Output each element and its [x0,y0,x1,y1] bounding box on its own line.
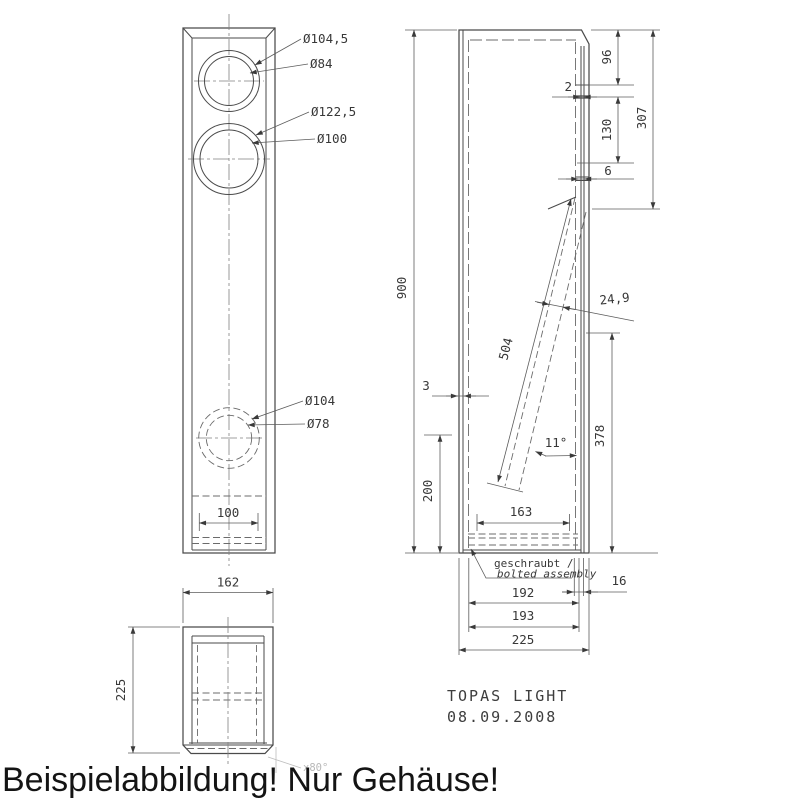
dim-900: 900 [394,30,414,553]
svg-text:378: 378 [592,425,607,448]
svg-text:96: 96 [599,49,614,64]
dim-162: 162 [183,575,273,624]
dim-tweeter-outer: Ø104,5 [303,31,348,46]
svg-text:2: 2 [564,79,572,94]
dim-225-depth: 225 [459,632,589,650]
title-block: TOPAS LIGHT 08.09.2008 [447,687,568,726]
dim-378: 378 [592,333,612,553]
dim-96: 96 [599,30,618,85]
dim-307: 307 [634,30,653,209]
svg-text:16: 16 [611,573,626,588]
front-view: Ø104,5 Ø84 Ø122,5 Ø100 Ø104 Ø78 100 [183,14,356,566]
dim-200: 200 [420,435,440,553]
svg-text:307: 307 [634,107,649,130]
dim-woofer-inner: Ø100 [317,131,347,146]
svg-text:130: 130 [599,119,614,142]
svg-text:3: 3 [422,378,430,393]
svg-text:11°: 11° [545,435,568,450]
svg-text:163: 163 [510,504,533,519]
svg-text:193: 193 [512,608,535,623]
svg-text:100: 100 [217,505,240,520]
dim-225-topview: 225 [113,627,180,753]
svg-text:504: 504 [496,336,516,362]
svg-text:900: 900 [394,277,409,300]
svg-text:bolted assembly: bolted assembly [497,568,597,581]
svg-text:225: 225 [113,679,128,702]
dim-193: 193 [469,608,580,627]
drawing-title: TOPAS LIGHT [447,687,568,705]
diameter-leaders [248,39,315,425]
example-disclaimer-text: Beispielabbildung! Nur Gehäuse! [2,761,499,799]
bottom-panel-hidden [468,534,578,545]
side-view: 900 96 2 130 307 6 [394,30,660,655]
dim-163: 163 [477,504,570,531]
svg-text:6: 6 [604,163,612,178]
drawing-date: 08.09.2008 [447,708,557,726]
dim-3: 3 [422,378,489,396]
dim-2: 2 [552,79,634,97]
technical-drawing-page: Ø104,5 Ø84 Ø122,5 Ø100 Ø104 Ø78 100 900 [0,0,800,800]
svg-text:200: 200 [420,480,435,503]
cad-drawing-canvas: Ø104,5 Ø84 Ø122,5 Ø100 Ø104 Ø78 100 900 [0,0,800,800]
dim-tweeter-inner: Ø84 [310,56,333,71]
dim-192: 192 [469,585,579,603]
dim-130: 130 [599,97,618,163]
dim-port-inner: Ø78 [307,416,330,431]
svg-text:225: 225 [512,632,535,647]
dim-woofer-outer: Ø122,5 [311,104,356,119]
dim-angle-11: 11° [536,435,577,456]
svg-text:192: 192 [512,585,535,600]
bolted-assembly-note: geschraubt / bolted assembly [471,549,597,581]
dim-port-outer: Ø104 [305,393,335,408]
dim-6: 6 [558,163,634,179]
top-view: 162 225 x80° [113,575,328,775]
svg-text:162: 162 [217,575,240,590]
svg-text:24,9: 24,9 [599,289,631,307]
